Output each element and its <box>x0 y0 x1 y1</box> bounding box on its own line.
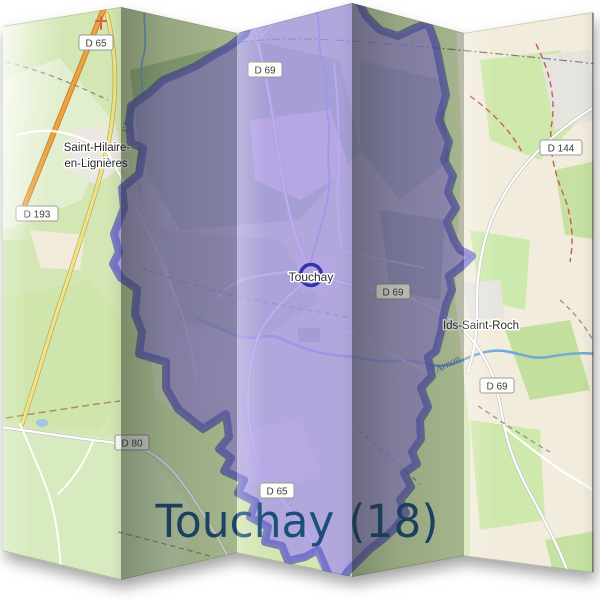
folded-map: l'Arnon l'Arnon Saint-Hilaire- en-Ligniè… <box>0 0 600 600</box>
fold-shading <box>0 0 597 600</box>
map-screenshot: l'Arnon l'Arnon Saint-Hilaire- en-Ligniè… <box>0 0 600 600</box>
